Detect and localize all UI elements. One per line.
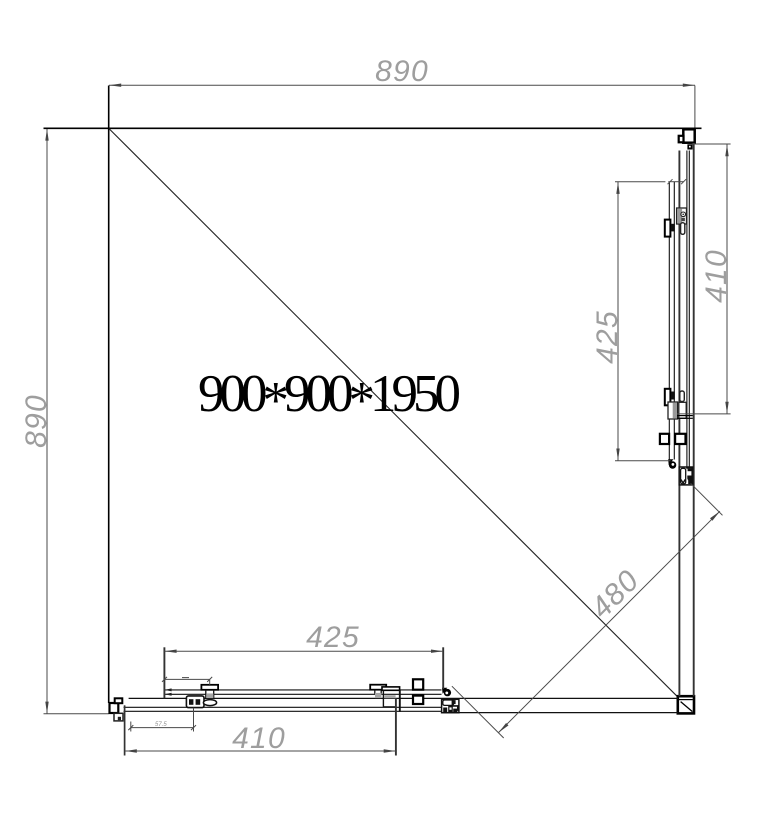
svg-text:890: 890 [20,394,53,448]
svg-text:425: 425 [306,621,360,654]
svg-text:900*900*1950: 900*900*1950 [198,365,460,430]
svg-text:410: 410 [232,722,286,755]
svg-text:425: 425 [591,310,624,364]
svg-text:410: 410 [700,249,733,303]
svg-text:57.5: 57.5 [155,722,167,728]
svg-text:890: 890 [375,55,429,88]
